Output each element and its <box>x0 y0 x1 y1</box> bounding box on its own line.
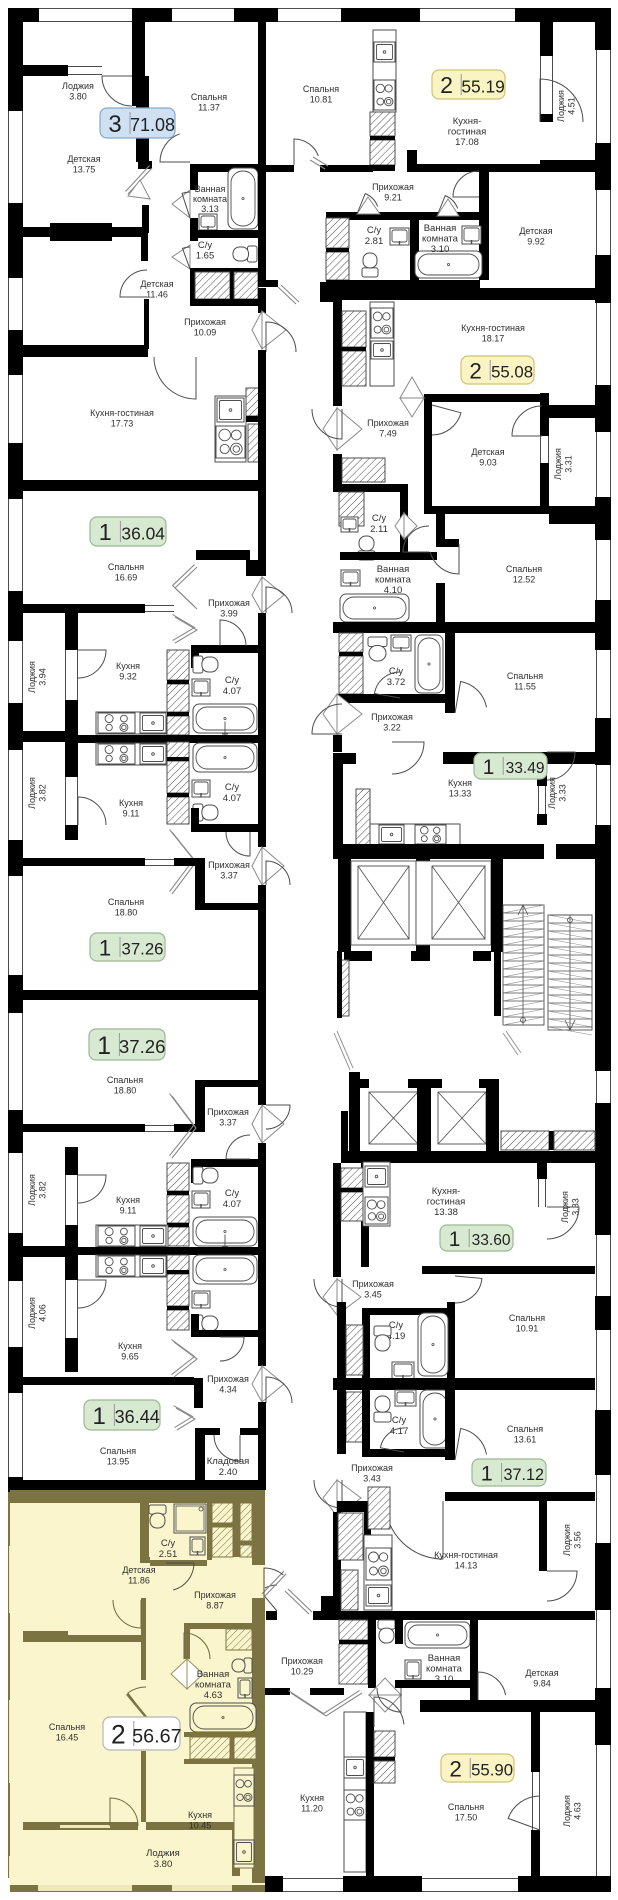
svg-text:Ванная: Ванная <box>377 564 410 575</box>
svg-text:Кухня: Кухня <box>300 1793 324 1803</box>
svg-text:3.45: 3.45 <box>364 1290 382 1300</box>
svg-text:71.08: 71.08 <box>130 115 175 135</box>
svg-text:1: 1 <box>449 1228 461 1251</box>
svg-text:Детская: Детская <box>67 154 100 164</box>
svg-text:Спальня: Спальня <box>108 562 144 572</box>
svg-text:4.63: 4.63 <box>204 1690 223 1701</box>
svg-text:13.75: 13.75 <box>73 165 96 175</box>
svg-text:Спальня: Спальня <box>107 1075 143 1085</box>
svg-text:Прихожая: Прихожая <box>208 598 250 608</box>
svg-text:комната: комната <box>426 1664 463 1675</box>
svg-text:9.92: 9.92 <box>527 237 545 247</box>
svg-text:9.11: 9.11 <box>120 1206 137 1216</box>
svg-text:С/у: С/у <box>225 1188 240 1199</box>
svg-text:11.20: 11.20 <box>301 1804 323 1814</box>
svg-text:17.73: 17.73 <box>111 419 134 429</box>
svg-text:Лоджия: Лоджия <box>556 90 566 122</box>
svg-text:18.80: 18.80 <box>114 1086 137 1096</box>
svg-text:1: 1 <box>483 756 495 779</box>
svg-text:гостиная: гостиная <box>448 127 487 138</box>
svg-text:3.10: 3.10 <box>431 244 450 255</box>
svg-text:3.37: 3.37 <box>220 871 238 881</box>
svg-text:2.51: 2.51 <box>159 1549 178 1560</box>
svg-text:10.09: 10.09 <box>194 328 217 338</box>
svg-text:Кладовая: Кладовая <box>207 1456 250 1467</box>
svg-text:14.13: 14.13 <box>455 1561 478 1571</box>
svg-text:9.11: 9.11 <box>123 809 140 819</box>
svg-text:гостиная: гостиная <box>427 1197 466 1208</box>
svg-text:7.49: 7.49 <box>379 429 397 439</box>
svg-text:Детская: Детская <box>140 279 173 289</box>
svg-text:Детская: Детская <box>519 226 552 236</box>
svg-text:Спальня: Спальня <box>507 1424 543 1434</box>
svg-text:С/у: С/у <box>161 1538 176 1549</box>
svg-text:9.03: 9.03 <box>479 458 497 468</box>
svg-text:55.90: 55.90 <box>471 1761 513 1780</box>
svg-text:55.08: 55.08 <box>491 363 533 382</box>
svg-text:Кухня: Кухня <box>116 661 140 671</box>
svg-text:Лоджия: Лоджия <box>562 1795 572 1827</box>
svg-text:С/у: С/у <box>367 225 382 236</box>
svg-text:комната: комната <box>193 194 227 204</box>
svg-text:2.11: 2.11 <box>370 524 388 535</box>
svg-text:55.19: 55.19 <box>461 76 505 96</box>
svg-text:Кухня: Кухня <box>188 1810 212 1820</box>
svg-text:Лоджия: Лоджия <box>27 777 37 809</box>
svg-text:12.52: 12.52 <box>513 575 536 585</box>
svg-text:С/у: С/у <box>392 1415 407 1426</box>
svg-text:Прихожая: Прихожая <box>194 1590 236 1600</box>
svg-text:9.84: 9.84 <box>533 1679 551 1689</box>
svg-text:Кухня-гостиная: Кухня-гостиная <box>434 1550 498 1560</box>
svg-text:11.37: 11.37 <box>198 103 220 113</box>
svg-text:11.46: 11.46 <box>146 290 168 300</box>
svg-text:Лоджия: Лоджия <box>27 1174 37 1206</box>
svg-text:Прихожая: Прихожая <box>184 317 226 327</box>
svg-text:4.34: 4.34 <box>219 1385 237 1395</box>
svg-text:Прихожая: Прихожая <box>367 418 409 428</box>
svg-text:Прихожая: Прихожая <box>208 860 250 870</box>
svg-text:Кухня: Кухня <box>118 1341 142 1351</box>
svg-text:Спальня: Спальня <box>509 1313 545 1323</box>
svg-text:9.21: 9.21 <box>384 193 402 203</box>
svg-text:18.17: 18.17 <box>482 334 505 344</box>
svg-text:2.81: 2.81 <box>365 236 384 247</box>
svg-text:16.45: 16.45 <box>56 1733 79 1743</box>
svg-text:Ванная: Ванная <box>197 1669 230 1680</box>
svg-text:3.33: 3.33 <box>557 784 567 802</box>
svg-text:комната: комната <box>422 234 459 245</box>
svg-text:13.38: 13.38 <box>434 1207 458 1218</box>
svg-text:3.13: 3.13 <box>201 204 219 214</box>
svg-text:4.07: 4.07 <box>223 793 242 804</box>
svg-text:11.86: 11.86 <box>128 1576 150 1586</box>
svg-text:11.55: 11.55 <box>514 682 536 692</box>
svg-text:Детская: Детская <box>122 1565 155 1575</box>
svg-text:2: 2 <box>469 358 481 383</box>
svg-text:3.99: 3.99 <box>220 609 238 619</box>
svg-text:С/у: С/у <box>225 782 240 793</box>
svg-text:Спальня: Спальня <box>507 671 543 681</box>
svg-text:1: 1 <box>481 1461 493 1486</box>
svg-text:Ванная: Ванная <box>428 1653 461 1664</box>
svg-text:комната: комната <box>195 1680 232 1691</box>
svg-text:Спальня: Спальня <box>191 92 227 102</box>
svg-text:4.07: 4.07 <box>223 1199 242 1210</box>
svg-text:Спальня: Спальня <box>100 1446 136 1456</box>
svg-text:10.81: 10.81 <box>310 95 333 105</box>
svg-text:Прихожая: Прихожая <box>372 182 414 192</box>
svg-text:Лоджия: Лоджия <box>146 1848 180 1859</box>
svg-text:17.50: 17.50 <box>455 1813 478 1823</box>
svg-text:4.17: 4.17 <box>390 1426 409 1437</box>
svg-text:13.61: 13.61 <box>514 1435 537 1445</box>
svg-text:С/у: С/у <box>372 513 387 524</box>
svg-text:Кухня-: Кухня- <box>432 1186 461 1197</box>
svg-text:Кухня: Кухня <box>116 1195 140 1205</box>
svg-text:4.63: 4.63 <box>572 1802 582 1820</box>
svg-text:8.87: 8.87 <box>206 1601 224 1611</box>
svg-text:16.69: 16.69 <box>115 573 138 583</box>
svg-text:10.91: 10.91 <box>516 1324 539 1334</box>
svg-text:Прихожая: Прихожая <box>352 1279 394 1289</box>
svg-text:комната: комната <box>375 575 412 586</box>
svg-text:3.37: 3.37 <box>219 1118 237 1128</box>
svg-text:Кухня-: Кухня- <box>453 116 482 127</box>
svg-text:36.44: 36.44 <box>115 1407 160 1427</box>
svg-text:37.12: 37.12 <box>504 1466 545 1484</box>
svg-text:9.32: 9.32 <box>119 672 137 682</box>
svg-text:3.72: 3.72 <box>387 677 406 688</box>
svg-text:3.80: 3.80 <box>69 92 87 102</box>
svg-text:Детская: Детская <box>471 447 504 457</box>
svg-text:Спальня: Спальня <box>303 84 339 94</box>
svg-text:33.60: 33.60 <box>472 1232 511 1249</box>
svg-text:10.29: 10.29 <box>291 1667 314 1677</box>
svg-text:2.40: 2.40 <box>219 1467 238 1478</box>
svg-text:Лоджия: Лоджия <box>562 1524 572 1556</box>
svg-text:4.51: 4.51 <box>566 97 576 115</box>
svg-text:37.26: 37.26 <box>119 1036 166 1057</box>
svg-text:1: 1 <box>93 1403 106 1430</box>
svg-text:3.43: 3.43 <box>363 1474 381 1484</box>
svg-text:2: 2 <box>449 1756 461 1781</box>
svg-text:17.08: 17.08 <box>455 137 479 148</box>
svg-text:Ванная: Ванная <box>195 184 226 194</box>
svg-text:3.94: 3.94 <box>37 668 47 686</box>
svg-text:Лоджия: Лоджия <box>62 81 94 91</box>
svg-text:Детская: Детская <box>525 1668 558 1678</box>
svg-text:Кухня-гостиная: Кухня-гостиная <box>90 408 154 418</box>
svg-text:13.33: 13.33 <box>449 789 472 799</box>
svg-text:4.06: 4.06 <box>37 1304 47 1322</box>
svg-text:1: 1 <box>97 1033 111 1060</box>
svg-text:36.04: 36.04 <box>121 523 165 543</box>
svg-text:Кухня: Кухня <box>448 778 472 788</box>
svg-text:Спальня: Спальня <box>448 1802 484 1812</box>
svg-text:Лоджия: Лоджия <box>553 448 563 480</box>
svg-text:1: 1 <box>99 935 111 960</box>
svg-text:Прихожая: Прихожая <box>207 1107 249 1117</box>
svg-text:3.82: 3.82 <box>37 1181 47 1199</box>
svg-text:3.56: 3.56 <box>572 1531 582 1549</box>
svg-text:2: 2 <box>440 72 453 98</box>
svg-text:Лоджия: Лоджия <box>27 661 37 693</box>
svg-text:Кухня-гостиная: Кухня-гостиная <box>461 323 525 333</box>
svg-text:Лоджия: Лоджия <box>27 1297 37 1329</box>
svg-text:Спальня: Спальня <box>506 564 542 574</box>
svg-text:2: 2 <box>111 1719 126 1749</box>
svg-text:37.26: 37.26 <box>122 940 164 959</box>
svg-text:33.49: 33.49 <box>506 760 545 777</box>
svg-text:Спальня: Спальня <box>108 897 144 907</box>
svg-text:3.82: 3.82 <box>37 784 47 802</box>
svg-text:10.45: 10.45 <box>189 1821 212 1831</box>
svg-text:3.22: 3.22 <box>383 723 401 733</box>
svg-text:3.80: 3.80 <box>154 1859 173 1870</box>
svg-text:Лоджия: Лоджия <box>547 777 557 809</box>
svg-text:С/у: С/у <box>225 675 240 686</box>
svg-text:13.95: 13.95 <box>107 1457 130 1467</box>
svg-text:9.65: 9.65 <box>121 1352 139 1362</box>
svg-text:Кухня: Кухня <box>119 798 143 808</box>
svg-text:Прихожая: Прихожая <box>351 1463 393 1473</box>
svg-text:4.07: 4.07 <box>223 686 242 697</box>
svg-text:Прихожая: Прихожая <box>281 1656 323 1666</box>
svg-text:Прихожая: Прихожая <box>207 1374 249 1384</box>
svg-text:1: 1 <box>99 519 112 545</box>
svg-text:Ванная: Ванная <box>424 223 457 234</box>
svg-text:Прихожая: Прихожая <box>371 712 413 722</box>
svg-text:56.67: 56.67 <box>132 1725 182 1747</box>
svg-text:Спальня: Спальня <box>49 1722 85 1732</box>
svg-text:С/у: С/у <box>389 666 404 677</box>
svg-text:3.31: 3.31 <box>563 455 573 473</box>
svg-text:С/у: С/у <box>198 240 213 251</box>
svg-text:3: 3 <box>108 111 121 138</box>
svg-text:18.80: 18.80 <box>115 908 138 918</box>
svg-text:1.65: 1.65 <box>196 251 215 262</box>
